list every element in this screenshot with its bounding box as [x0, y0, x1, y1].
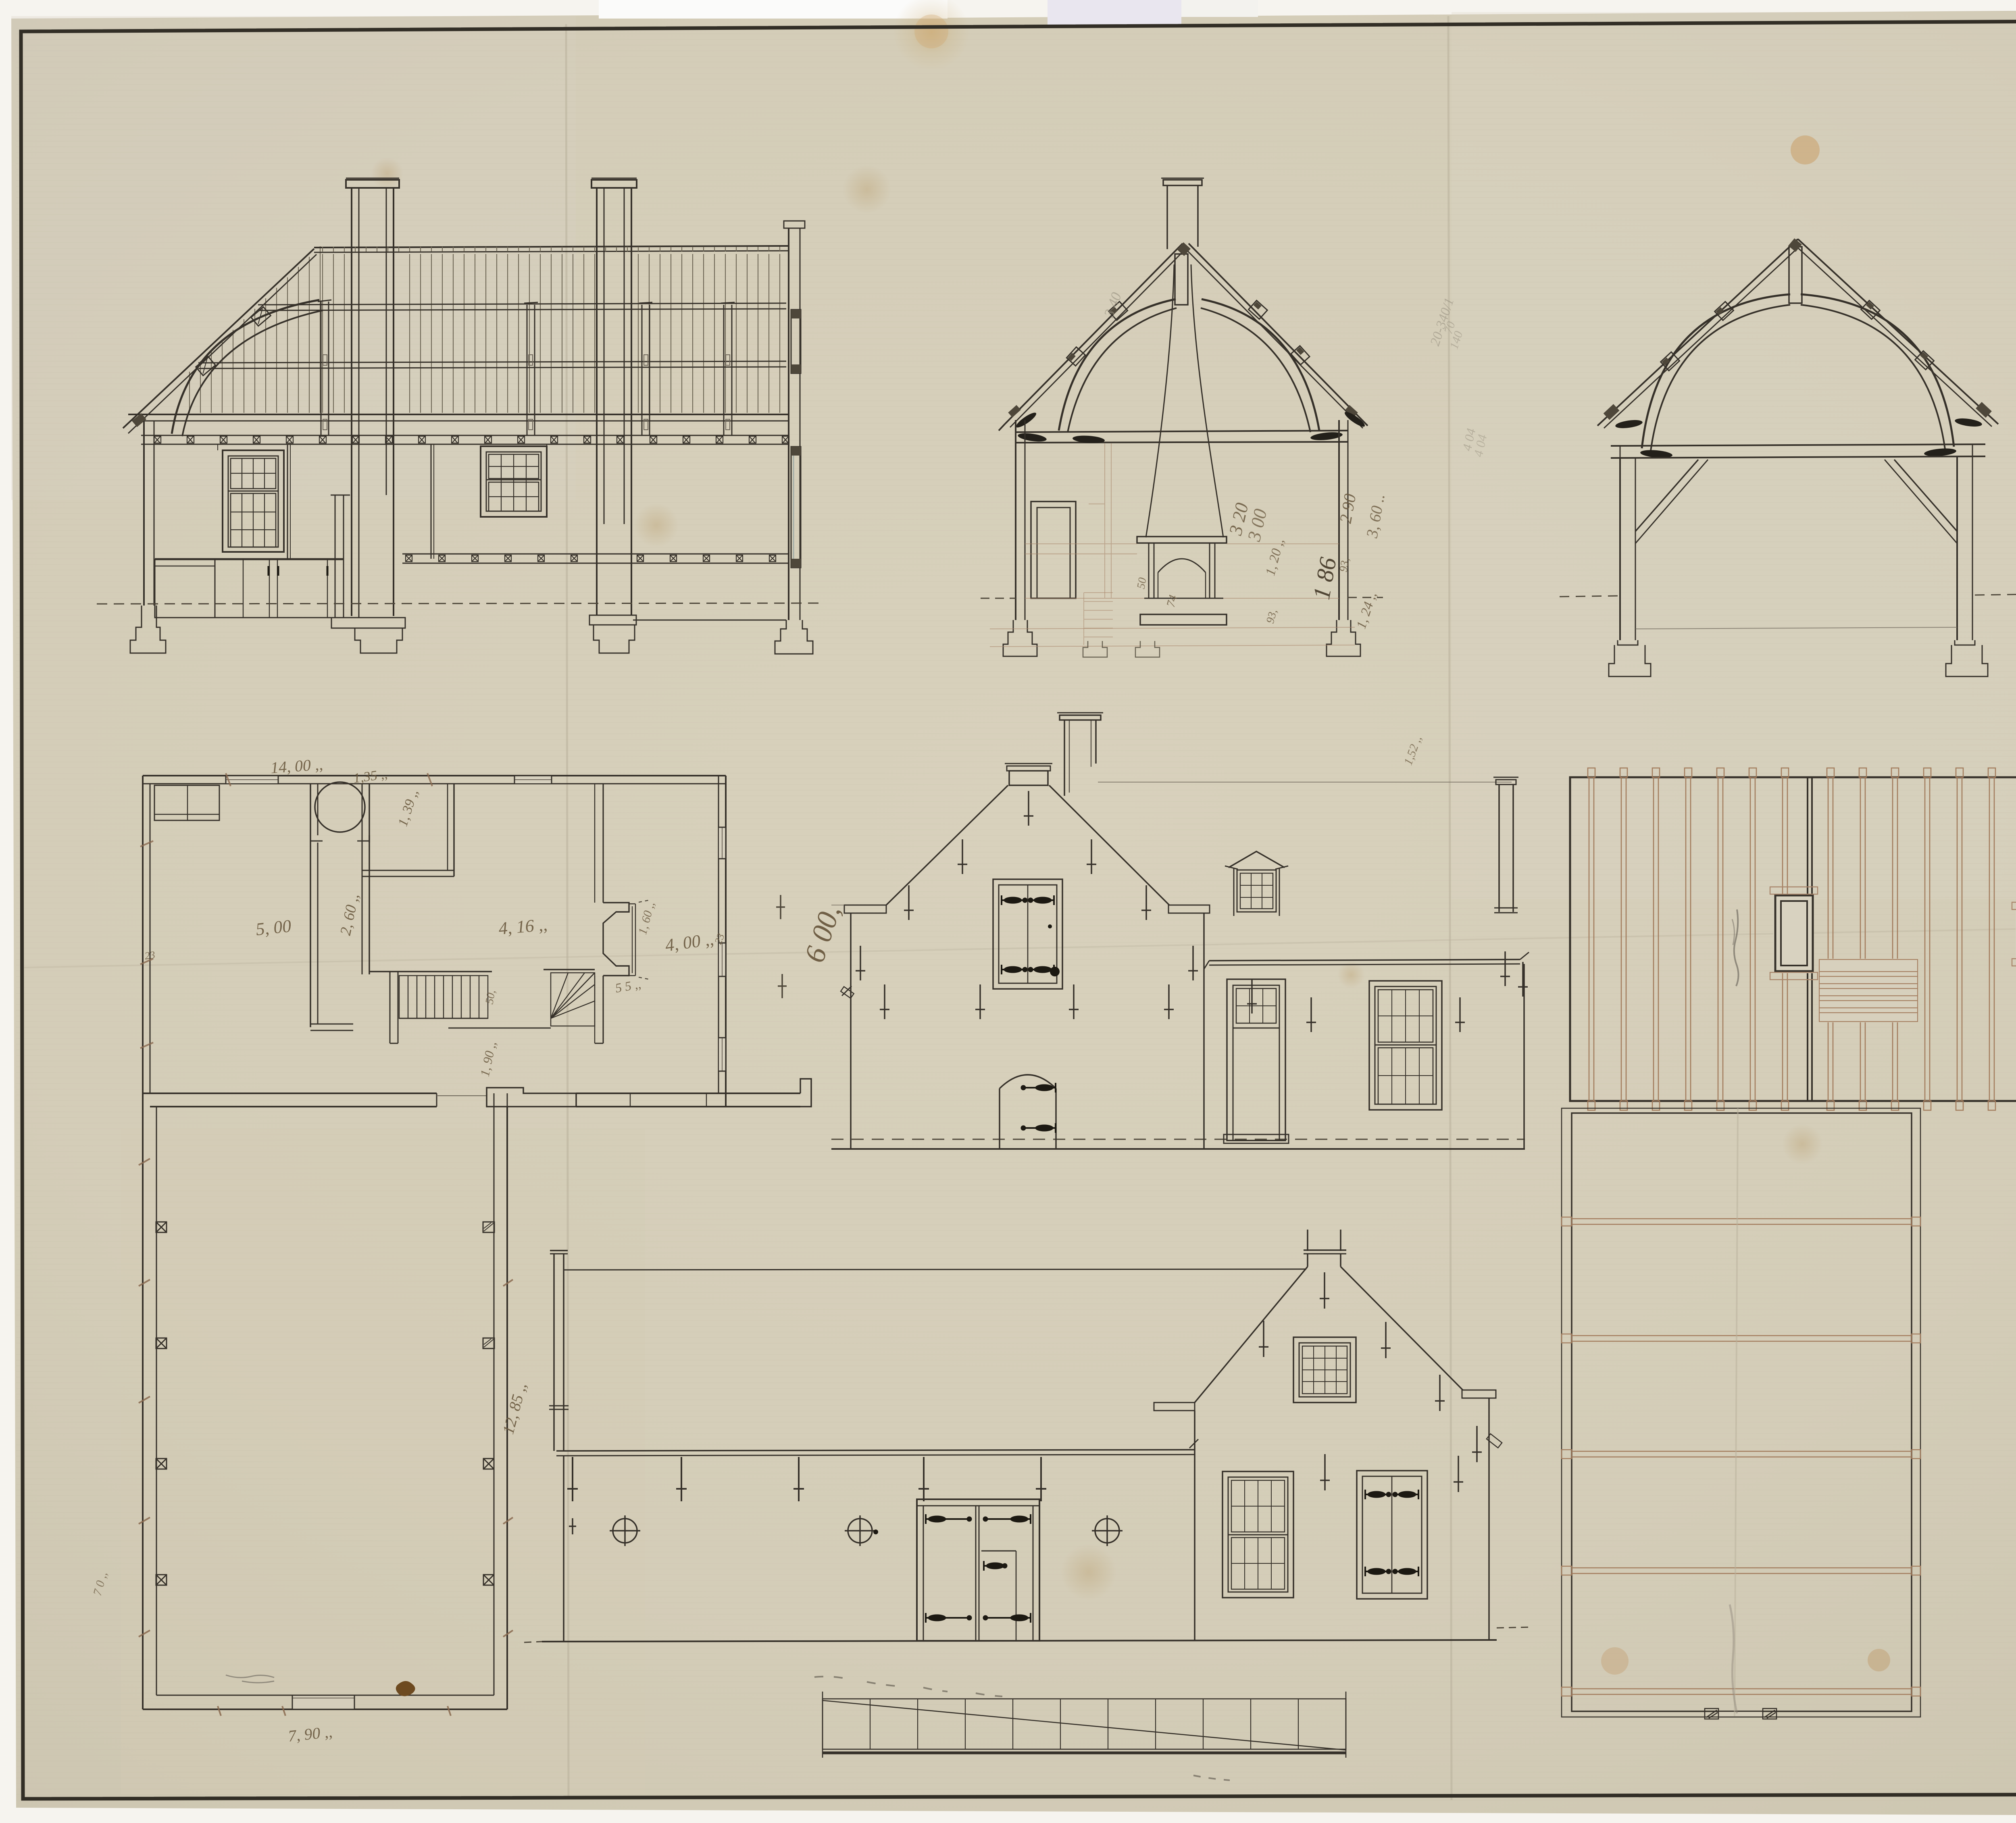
svg-text:14, 00 ,,: 14, 00 ,,: [270, 755, 323, 777]
svg-text:5, 00: 5, 00: [255, 916, 292, 939]
svg-text:23: 23: [144, 949, 156, 962]
svg-text:50,: 50,: [483, 989, 498, 1005]
svg-text:50: 50: [1135, 576, 1149, 590]
svg-text:93,: 93,: [1337, 557, 1352, 573]
